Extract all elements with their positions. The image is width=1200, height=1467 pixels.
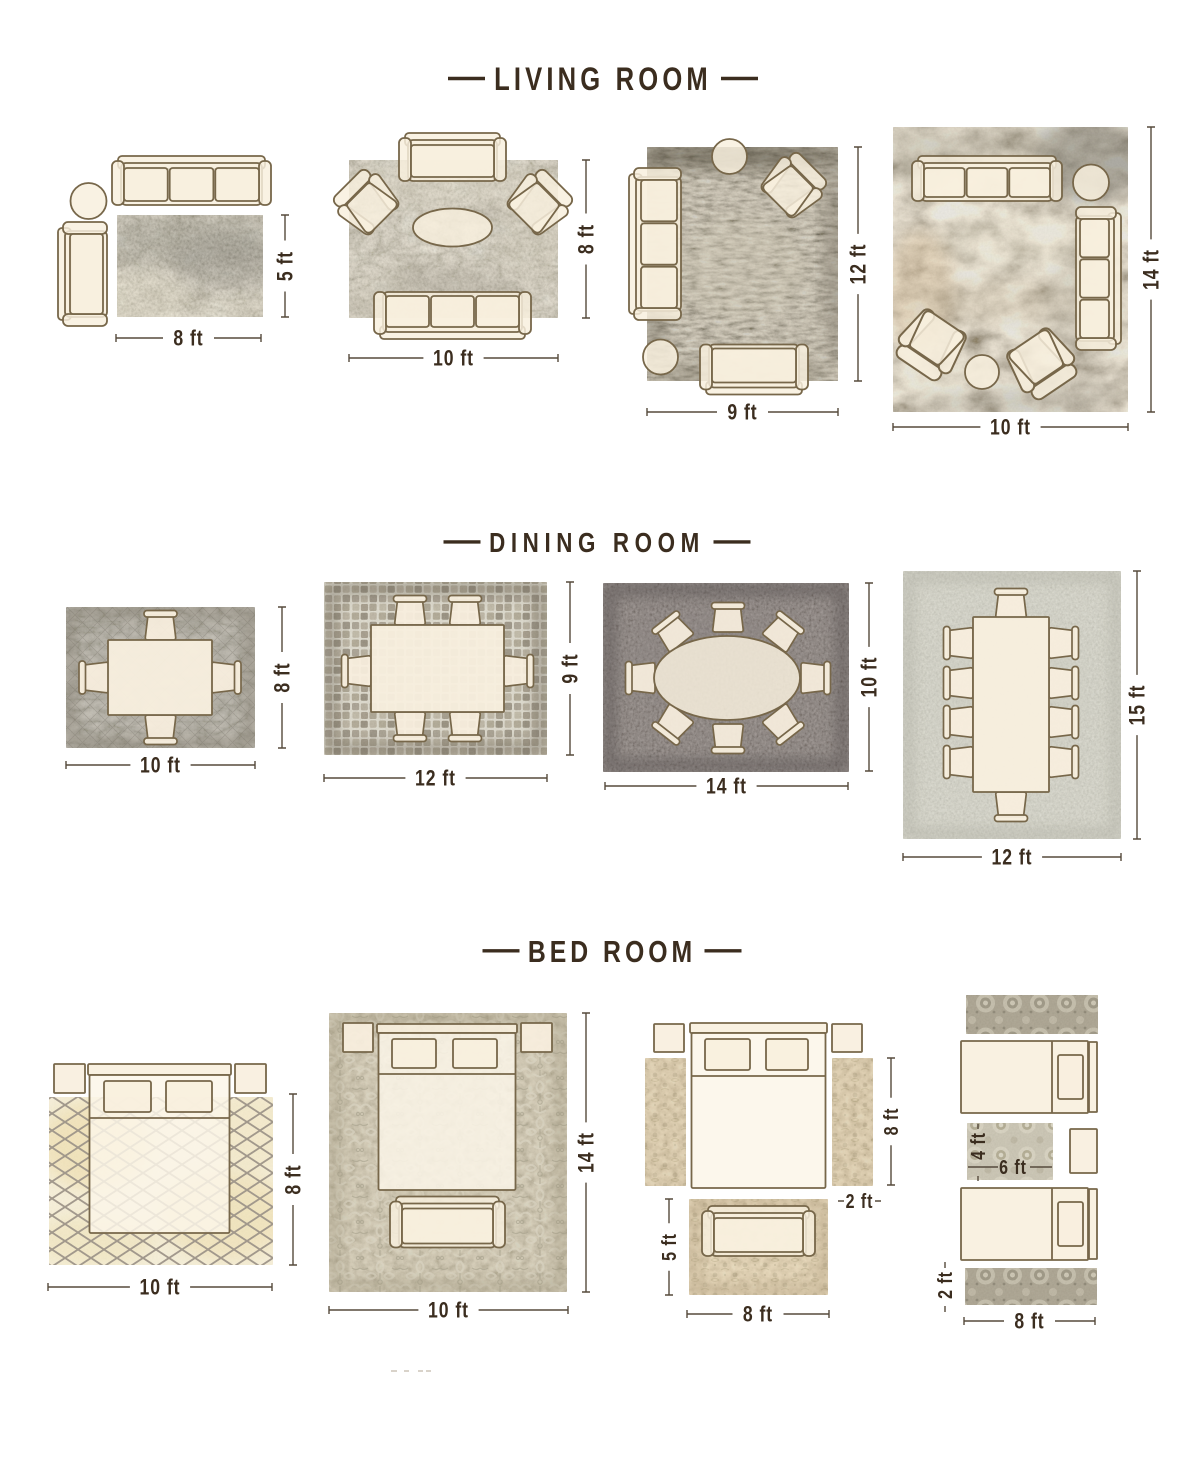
svg-text:15 ft: 15 ft: [1126, 685, 1150, 726]
svg-text:8 ft: 8 ft: [173, 327, 203, 351]
svg-text:10 ft: 10 ft: [428, 1299, 469, 1323]
svg-text:BED ROOM: BED ROOM: [528, 934, 696, 968]
svg-text:10 ft: 10 ft: [990, 416, 1031, 440]
svg-text:12 ft: 12 ft: [415, 767, 456, 791]
svg-text:8 ft: 8 ft: [282, 1164, 306, 1194]
svg-text:14 ft: 14 ft: [706, 775, 747, 799]
svg-text:8 ft: 8 ft: [1014, 1310, 1044, 1334]
svg-text:DINING ROOM: DINING ROOM: [489, 528, 705, 559]
svg-text:9 ft: 9 ft: [727, 401, 757, 425]
svg-text:2 ft: 2 ft: [934, 1271, 956, 1299]
svg-text:9 ft: 9 ft: [559, 653, 583, 683]
svg-text:14 ft: 14 ft: [575, 1132, 599, 1173]
svg-text:4 ft: 4 ft: [967, 1132, 989, 1160]
svg-text:8 ft: 8 ft: [271, 662, 295, 692]
svg-text:8 ft: 8 ft: [743, 1303, 773, 1327]
svg-text:12 ft: 12 ft: [992, 846, 1033, 870]
svg-text:5 ft: 5 ft: [658, 1233, 680, 1261]
svg-text:5 ft: 5 ft: [274, 251, 298, 281]
svg-text:12 ft: 12 ft: [847, 244, 871, 285]
svg-text:2 ft: 2 ft: [846, 1190, 874, 1212]
svg-text:8 ft: 8 ft: [575, 224, 599, 254]
svg-text:10 ft: 10 ft: [140, 754, 181, 778]
svg-text:LIVING ROOM: LIVING ROOM: [494, 62, 712, 97]
svg-text:8 ft: 8 ft: [880, 1108, 902, 1136]
svg-text:10 ft: 10 ft: [433, 347, 474, 371]
svg-text:6 ft: 6 ft: [999, 1156, 1027, 1178]
svg-text:10 ft: 10 ft: [858, 657, 882, 698]
svg-text:10 ft: 10 ft: [140, 1276, 181, 1300]
svg-text:14 ft: 14 ft: [1140, 249, 1164, 290]
